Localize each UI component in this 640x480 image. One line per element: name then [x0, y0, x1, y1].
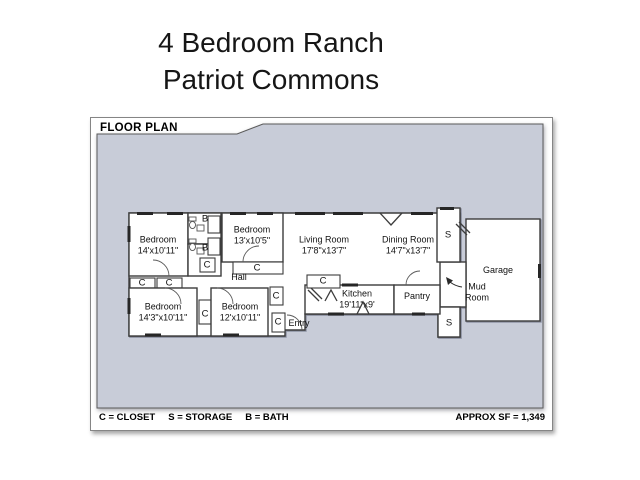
bath-marker-1: B	[202, 214, 208, 225]
room-label-bedroom1: Bedroom 14'x10'11"	[138, 235, 179, 256]
closet-marker-4: C	[254, 263, 261, 274]
closet-marker-5: C	[202, 309, 209, 320]
kitchen-name: Kitchen	[339, 289, 375, 300]
bath-linen-bottom	[208, 238, 220, 255]
room-label-dining: Dining Room 14'7"x13'7"	[382, 235, 434, 256]
room-label-bedroom4: Bedroom 12'x10'11"	[220, 302, 261, 323]
closet-marker-3: C	[204, 260, 211, 271]
dining-dims: 14'7"x13'7"	[382, 245, 434, 256]
legend-bath: B = BATH	[245, 412, 288, 423]
room-label-bedroom2: Bedroom 13'x10'5"	[234, 225, 271, 246]
storage-marker-1: S	[445, 230, 451, 241]
closet-marker-8: C	[320, 276, 327, 287]
bedroom2-name: Bedroom	[234, 225, 271, 236]
bath-marker-2: B	[202, 243, 208, 254]
room-label-living: Living Room 17'8"x13'7"	[299, 235, 349, 256]
room-label-hall: Hall	[231, 272, 247, 283]
closet-marker-7: C	[275, 317, 282, 328]
legend-bar: C = CLOSET S = STORAGE B = BATH APPROX S…	[99, 412, 545, 423]
room-label-pantry: Pantry	[404, 291, 430, 302]
living-name: Living Room	[299, 235, 349, 246]
dining-name: Dining Room	[382, 235, 434, 246]
legend: C = CLOSET S = STORAGE B = BATH	[99, 412, 289, 423]
page: { "title": { "line1": "4 Bedroom Ranch",…	[0, 0, 640, 480]
floorplan-frame: FLOOR PLAN	[90, 117, 553, 431]
title-line2: Patriot Commons	[101, 61, 441, 98]
living-dims: 17'8"x13'7"	[299, 245, 349, 256]
closet-marker-1: C	[139, 278, 146, 289]
bedroom3-dims: 14'3"x10'11"	[139, 312, 188, 323]
legend-storage: S = STORAGE	[168, 412, 232, 423]
bedroom1-dims: 14'x10'11"	[138, 245, 179, 256]
room-label-kitchen: Kitchen 19'11"x9'	[339, 289, 375, 310]
storage-marker-2: S	[446, 318, 452, 329]
floorplan-header: FLOOR PLAN	[100, 122, 178, 134]
bedroom4-dims: 12'x10'11"	[220, 312, 261, 323]
room-label-entry: Entry	[288, 318, 309, 329]
approx-sf: APPROX SF = 1,349	[456, 412, 546, 423]
bath-linen-top	[208, 216, 220, 233]
closet-marker-6: C	[273, 291, 280, 302]
room-label-garage: Garage	[483, 265, 513, 276]
closet-marker-2: C	[166, 278, 173, 289]
kitchen-dims: 19'11"x9'	[339, 299, 375, 310]
page-title: 4 Bedroom Ranch Patriot Commons	[101, 24, 441, 98]
bedroom2-dims: 13'x10'5"	[234, 235, 271, 246]
room-label-bedroom3: Bedroom 14'3"x10'11"	[139, 302, 188, 323]
room-label-mudroom: Mud Room	[457, 282, 497, 303]
bedroom4-name: Bedroom	[220, 302, 261, 313]
legend-closet: C = CLOSET	[99, 412, 155, 423]
title-line1: 4 Bedroom Ranch	[101, 24, 441, 61]
bedroom1-name: Bedroom	[138, 235, 179, 246]
bedroom3-name: Bedroom	[139, 302, 188, 313]
